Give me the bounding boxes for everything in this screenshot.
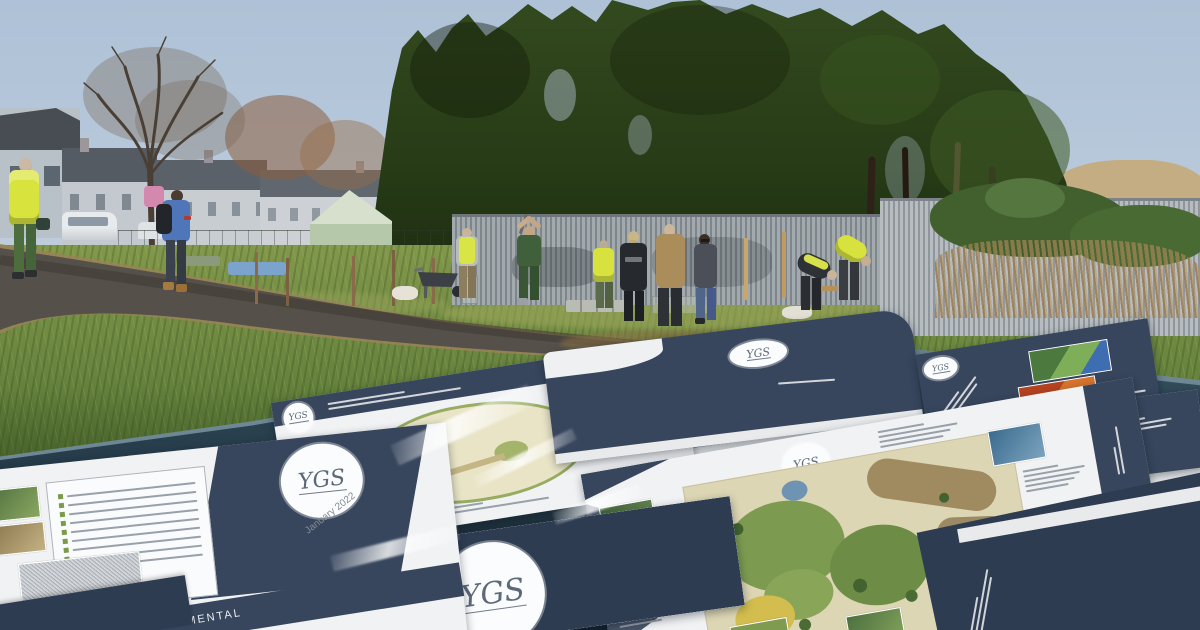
person-blue-hoodie-walker	[154, 190, 204, 302]
logo-monogram: YGS	[297, 467, 346, 495]
bullet-marker	[62, 539, 67, 544]
logo-monogram: YGS	[288, 411, 309, 424]
person-group-tan-jumper	[652, 224, 688, 330]
wheelbarrow-leg	[424, 286, 427, 298]
map-thumbnail-green	[1028, 339, 1112, 383]
bullet-marker	[59, 503, 64, 508]
logo-monogram: YGS	[459, 574, 527, 614]
photo-scene: YGS YGS YGS	[0, 0, 1200, 630]
person-planting-bent	[833, 234, 873, 312]
text-line	[778, 379, 835, 385]
ivy-bush	[985, 178, 1065, 218]
band-title-lines	[1106, 420, 1128, 475]
photo-thumbnail	[0, 485, 41, 522]
bullet-marker	[63, 548, 68, 553]
sapling	[286, 258, 289, 306]
ygs-logo-circle: YGS	[922, 355, 959, 382]
person-wheelbarrow-worker	[452, 228, 484, 304]
logo-monogram: YGS	[932, 362, 950, 374]
person-group-black-jacket	[616, 231, 652, 325]
white-sacks	[392, 286, 418, 300]
bullet-marker	[62, 530, 67, 535]
photo-thumbnail	[0, 521, 47, 556]
ygs-logo-circle: YGS	[728, 337, 789, 370]
logo-monogram: YGS	[746, 346, 771, 361]
person-group-grey-jacket	[690, 234, 720, 324]
person-hammering-stake	[508, 218, 550, 308]
stake	[744, 238, 748, 300]
sapling	[352, 256, 355, 306]
bullet-marker	[60, 512, 65, 517]
photo-thumbnail	[987, 422, 1046, 467]
cover-title-line	[778, 372, 888, 388]
person-hivis-walker	[6, 158, 50, 290]
sapling	[255, 252, 258, 304]
bullet-marker	[61, 521, 66, 526]
stake	[782, 232, 786, 298]
person-group-hivis	[590, 240, 618, 310]
band-text-lines	[966, 559, 998, 630]
bullet-marker	[58, 494, 63, 499]
wheelbarrow-handle	[414, 267, 424, 272]
note-lines	[1022, 456, 1096, 496]
